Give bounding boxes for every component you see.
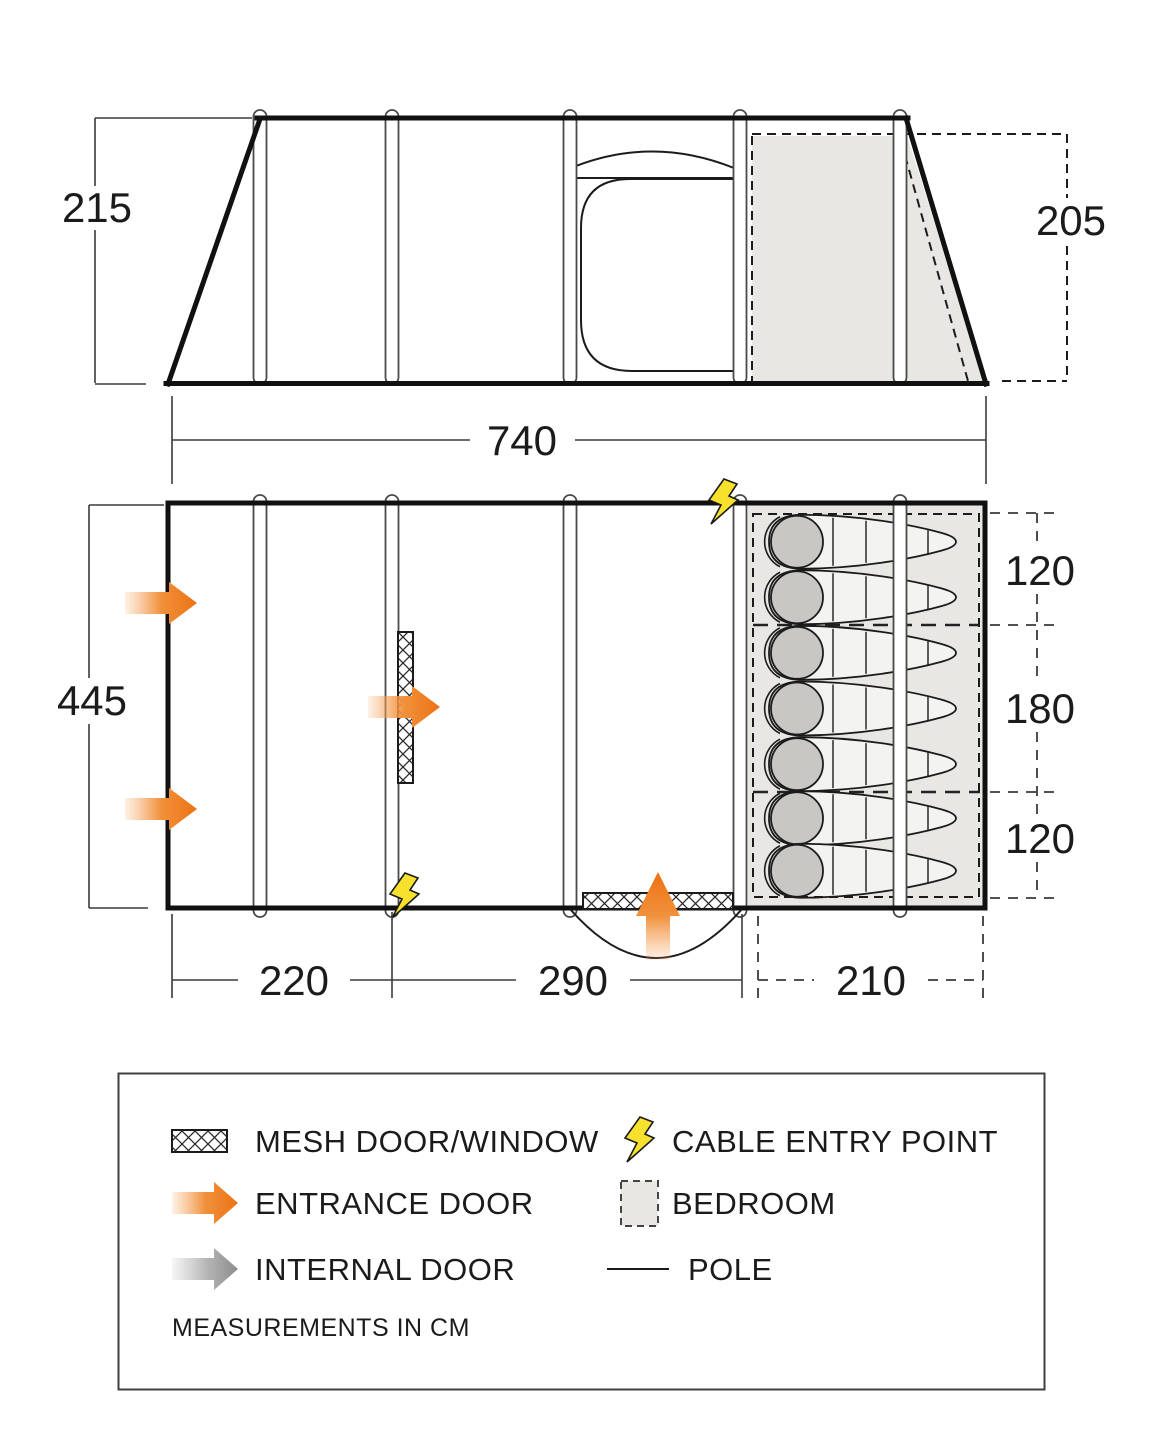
living-section-value: 290 bbox=[538, 957, 608, 1004]
side-elevation-view: 215 205 740 bbox=[62, 110, 1106, 484]
measurements-note: MEASUREMENTS IN CM bbox=[172, 1314, 470, 1342]
legend-label-entrance: ENTRANCE DOOR bbox=[255, 1186, 534, 1221]
dimension-living-section: 290 bbox=[392, 914, 742, 1004]
pole bbox=[564, 110, 577, 384]
bedroom-section-value: 120 bbox=[1005, 547, 1075, 594]
bedroom-section-value: 180 bbox=[1005, 685, 1075, 732]
height-right-value: 205 bbox=[1036, 197, 1106, 244]
legend-label-internal: INTERNAL DOOR bbox=[255, 1252, 515, 1287]
pole bbox=[254, 110, 267, 384]
legend-label-cable: CABLE ENTRY POINT bbox=[672, 1124, 998, 1159]
pole bbox=[386, 110, 399, 384]
dimension-length: 740 bbox=[172, 396, 986, 484]
pole bbox=[894, 110, 907, 384]
pole bbox=[254, 495, 267, 917]
dimension-width: 445 bbox=[57, 505, 164, 908]
side-window bbox=[570, 151, 737, 371]
diagram-canvas: 215 205 740 bbox=[0, 0, 1166, 1456]
bedroom-section-value: 120 bbox=[1005, 815, 1075, 862]
mesh-swatch-icon bbox=[172, 1130, 227, 1152]
width-value: 445 bbox=[57, 677, 127, 724]
bedroom-depth-value: 210 bbox=[836, 957, 906, 1004]
dimension-height-left: 215 bbox=[62, 118, 252, 384]
dimension-bedroom-sections: 120 180 120 bbox=[990, 513, 1075, 898]
window-arch bbox=[576, 151, 734, 168]
dimension-front-section: 220 bbox=[172, 912, 392, 1004]
legend-box bbox=[119, 1074, 1045, 1390]
tent-dimensions-diagram: 215 205 740 bbox=[0, 0, 1166, 1456]
floor-plan-view: 445 220 290 210 bbox=[57, 479, 1075, 1004]
bedroom-swatch-icon bbox=[621, 1181, 658, 1226]
pole bbox=[894, 495, 907, 917]
legend-label-pole: POLE bbox=[688, 1252, 773, 1287]
pole bbox=[564, 495, 577, 917]
dimension-bedroom-depth: 210 bbox=[758, 916, 983, 1004]
window-panel bbox=[581, 179, 737, 371]
tent-left-slope bbox=[168, 119, 260, 384]
dimension-height-right: 205 bbox=[1002, 134, 1106, 381]
pole bbox=[734, 110, 747, 384]
legend-label-mesh: MESH DOOR/WINDOW bbox=[255, 1124, 599, 1159]
front-section-value: 220 bbox=[259, 957, 329, 1004]
pole bbox=[734, 495, 747, 917]
length-value: 740 bbox=[487, 417, 557, 464]
height-left-value: 215 bbox=[62, 184, 132, 231]
legend: MESH DOOR/WINDOW CABLE ENTRY POINT ENTRA… bbox=[119, 1074, 1045, 1390]
legend-label-bedroom: BEDROOM bbox=[672, 1186, 836, 1221]
